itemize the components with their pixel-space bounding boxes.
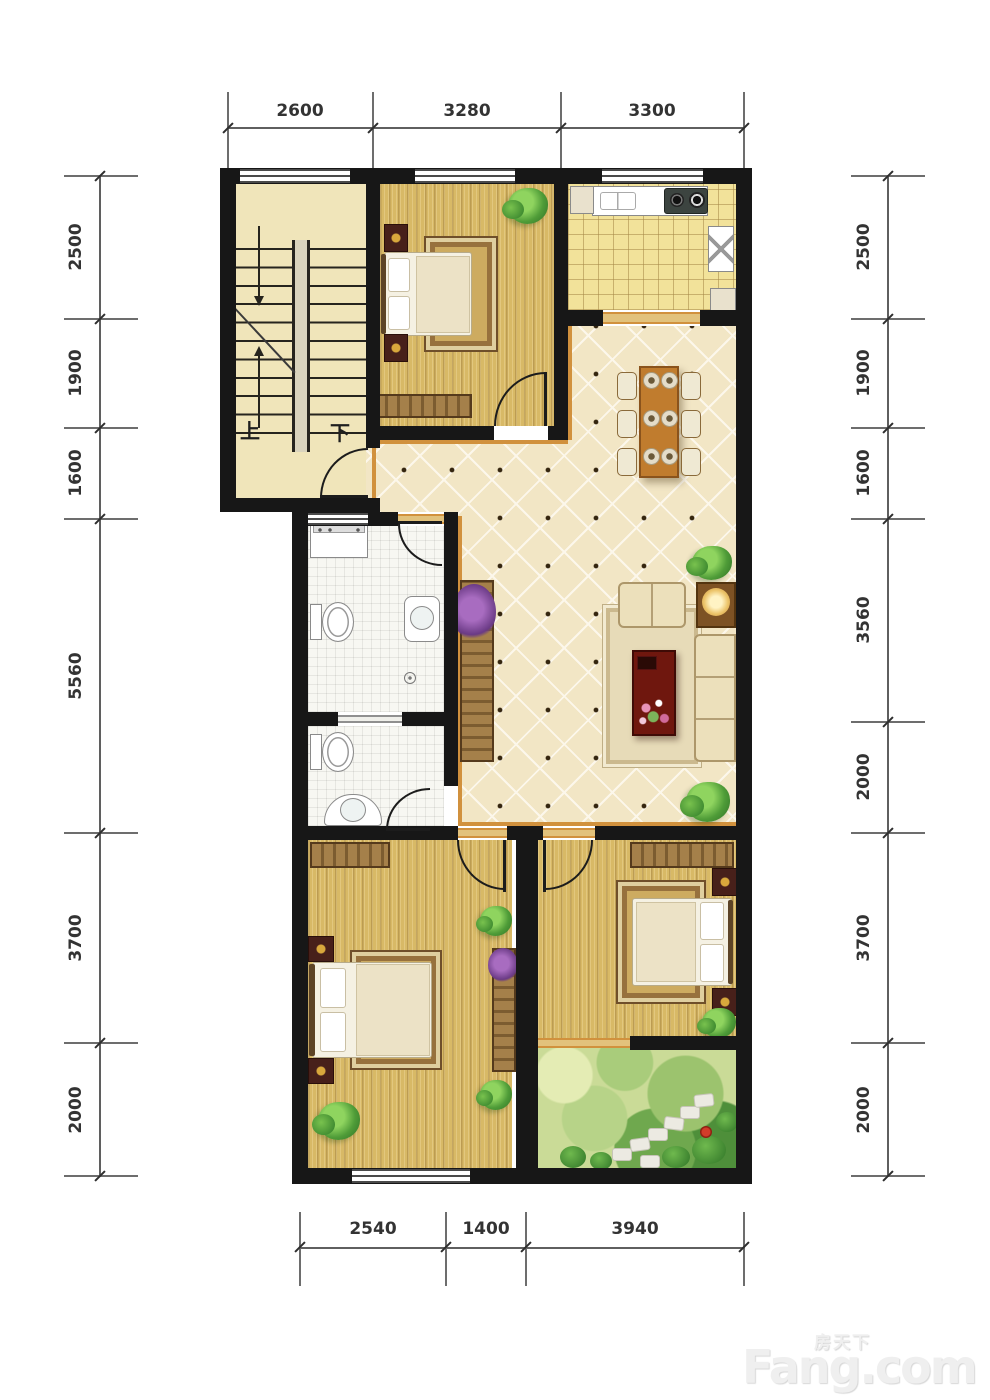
master-pillow — [320, 1012, 346, 1052]
stair-arrow-down — [258, 226, 260, 298]
stepping-stone — [640, 1155, 660, 1168]
dim-label: 2000 — [853, 747, 875, 807]
wall — [630, 1036, 736, 1050]
fridge-icon — [708, 226, 734, 272]
dim-label: 1600 — [65, 443, 87, 503]
flower-arrangement — [488, 948, 518, 982]
master-door-threshold — [458, 828, 507, 838]
dim-label: 2540 — [343, 1218, 403, 1240]
stepping-stone — [612, 1148, 632, 1161]
sink-basin — [410, 606, 434, 630]
wall — [554, 168, 568, 440]
wall — [700, 310, 736, 326]
tile-trim — [568, 326, 572, 440]
master-pillow — [320, 968, 346, 1008]
wall — [568, 310, 603, 326]
place-setting — [643, 410, 660, 427]
table-flowers — [634, 692, 674, 732]
kitchen-threshold — [603, 312, 700, 324]
bedroom1-pillow — [388, 296, 410, 330]
bathroom1-door-leaf — [398, 521, 442, 524]
kitchen-cabinet — [570, 186, 594, 214]
wall — [366, 426, 494, 440]
wall — [736, 168, 752, 1184]
dim-label: 3700 — [853, 908, 875, 968]
bedroom1-headboard — [381, 254, 386, 334]
wall — [308, 826, 458, 840]
dim-label: 3300 — [622, 100, 682, 122]
dim-label: 2500 — [853, 217, 875, 277]
toilet-bowl — [322, 732, 354, 772]
flower-arrangement — [452, 584, 496, 640]
table-lamp-icon — [702, 588, 730, 616]
stair-arrow-up — [258, 356, 260, 428]
bedroom1-pillow — [388, 258, 410, 292]
stair-down-label: 下 — [330, 422, 350, 444]
shrub-icon — [662, 1146, 690, 1168]
dining-chair — [617, 410, 637, 438]
place-setting — [643, 448, 660, 465]
master-blanket — [356, 964, 430, 1056]
stepping-stone — [648, 1128, 668, 1141]
bedroom3-headboard — [728, 900, 733, 984]
dim-label: 3700 — [65, 908, 87, 968]
place-setting — [661, 372, 678, 389]
floor-plan-canvas: 上 下 — [0, 0, 990, 1400]
watermark-en: Fang.com — [742, 1340, 976, 1394]
wall — [516, 826, 538, 1168]
stepping-stone — [693, 1093, 714, 1108]
dim-label: 1900 — [65, 343, 87, 403]
wall-lamp-icon — [308, 936, 334, 962]
dimension-line — [228, 127, 744, 129]
master-door-leaf — [503, 840, 506, 892]
bedroom3-pillow — [700, 902, 724, 940]
wall — [308, 712, 338, 726]
bedroom3-blanket — [636, 902, 696, 982]
dining-chair — [617, 448, 637, 476]
stair-railing — [292, 240, 310, 452]
place-setting — [661, 448, 678, 465]
dim-label: 3280 — [437, 100, 497, 122]
dimension-line — [99, 176, 101, 1176]
bedroom1-nightstand — [384, 334, 408, 362]
bedroom1-nightstand — [384, 224, 408, 252]
watermark-logo: 房天下 Fang.com — [742, 1328, 988, 1394]
wall — [444, 512, 458, 786]
dim-label: 1400 — [456, 1218, 516, 1240]
wall-lamp-icon — [308, 1058, 334, 1084]
flower-red — [700, 1126, 712, 1138]
master-headboard — [309, 964, 315, 1056]
toilet-icon — [310, 734, 322, 770]
stair-up-label: 上 — [240, 420, 260, 442]
window — [240, 169, 350, 183]
stove-burner — [670, 193, 684, 207]
wall — [366, 168, 380, 448]
kitchen-sink — [600, 192, 636, 210]
window — [352, 1169, 470, 1183]
stair-arrow-down-head — [254, 296, 264, 306]
wall — [402, 712, 444, 726]
dining-chair — [617, 372, 637, 400]
dim-label: 2000 — [65, 1080, 87, 1140]
shrub-icon — [692, 1136, 726, 1164]
coffee-table-tray — [637, 656, 657, 670]
dim-label: 3560 — [853, 590, 875, 650]
dim-label: 2500 — [65, 217, 87, 277]
dim-label: 2000 — [853, 1080, 875, 1140]
loveseat-sofa — [618, 582, 686, 628]
wall — [292, 498, 308, 1168]
bedroom1-blanket — [416, 256, 470, 333]
bedroom3-door-threshold — [543, 828, 595, 838]
place-setting — [643, 372, 660, 389]
master-wardrobe-top — [310, 842, 390, 868]
wall — [220, 168, 236, 512]
dining-chair — [681, 372, 701, 400]
bedroom1-door-leaf — [544, 372, 547, 426]
dimension-line — [887, 176, 889, 1176]
dim-label: 5560 — [65, 646, 87, 706]
shrub-icon — [716, 1112, 738, 1132]
entry-door-leaf — [320, 495, 368, 498]
bedroom3-door-leaf — [543, 840, 546, 892]
window — [602, 169, 703, 183]
washing-machine-panel — [313, 525, 365, 533]
toilet-icon — [310, 604, 322, 640]
window — [415, 169, 515, 183]
bedroom3-pillow — [700, 944, 724, 982]
bathroom-divider-slider — [338, 715, 402, 723]
stove-burner — [689, 192, 705, 208]
bedroom1-dresser — [374, 394, 472, 418]
dining-chair — [681, 448, 701, 476]
dim-label: 1900 — [853, 343, 875, 403]
wall — [595, 826, 736, 840]
dim-label: 2600 — [270, 100, 330, 122]
window — [308, 513, 368, 525]
place-setting — [661, 410, 678, 427]
balcony-threshold — [538, 1038, 630, 1048]
bathroom2-door-leaf — [386, 828, 430, 831]
floor-drain — [404, 672, 416, 684]
dim-label: 3940 — [605, 1218, 665, 1240]
main-sofa — [694, 634, 736, 762]
wall — [548, 426, 568, 440]
stepping-stone — [680, 1106, 700, 1119]
bedroom3-wardrobe — [630, 842, 734, 868]
tile-trim — [372, 440, 568, 444]
sink-basin — [340, 798, 366, 822]
toilet-bowl — [322, 602, 354, 642]
dim-label: 1600 — [853, 443, 875, 503]
kitchen-cabinet — [710, 288, 736, 312]
stair-arrow-up-head — [254, 346, 264, 356]
bedroom3-nightstand — [712, 868, 738, 896]
dining-chair — [681, 410, 701, 438]
shrub-icon — [560, 1146, 586, 1168]
